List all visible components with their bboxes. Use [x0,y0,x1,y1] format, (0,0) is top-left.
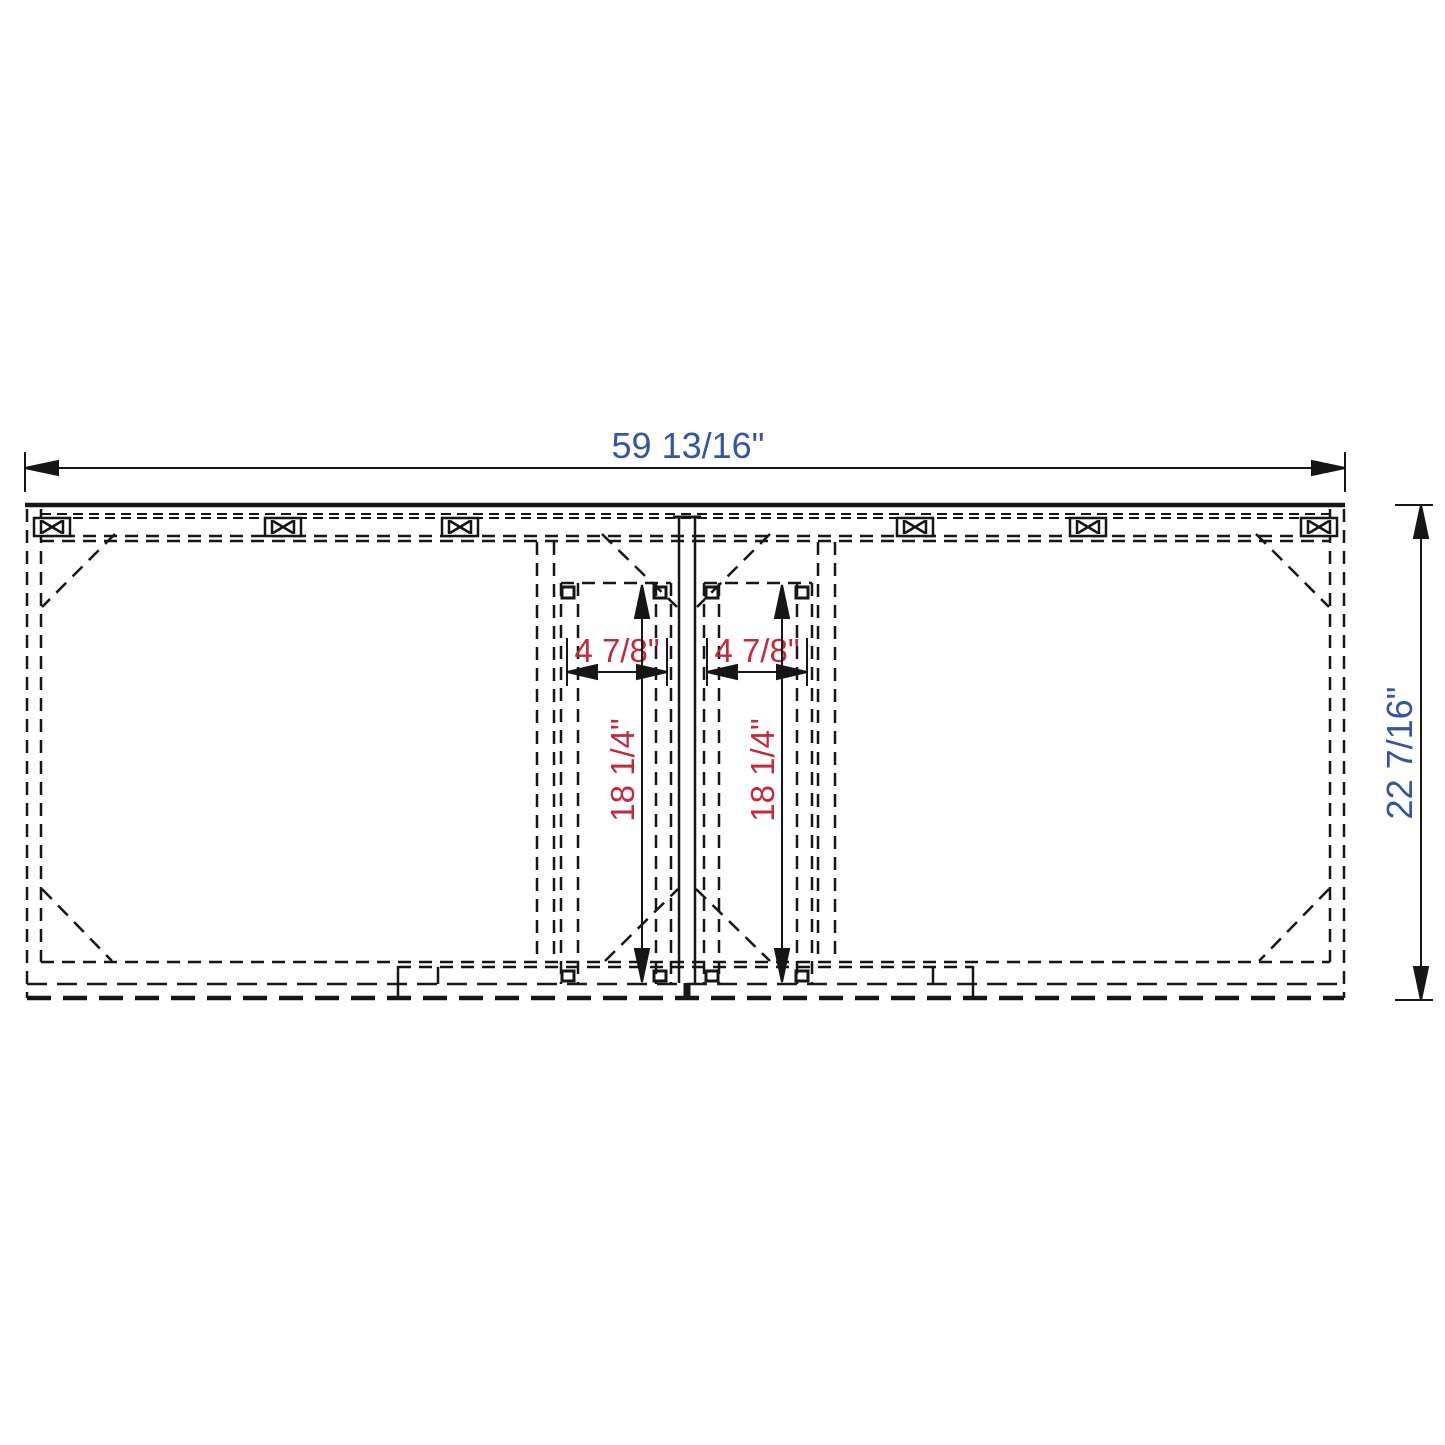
rail-bracket-icons [34,518,1337,536]
central-divider-post [673,517,701,999]
arrowhead-left-icon [25,461,58,475]
corner-braces [42,534,1329,961]
arrowhead-down-icon [775,949,789,982]
cabinet-side-walls [27,509,1344,998]
bracket-icon [897,518,933,536]
bracket-icon [265,518,301,536]
left-opening-height-label: 18 1/4" [604,718,641,821]
arrowhead-down-icon [1414,967,1428,1000]
bracket-icon [34,518,70,536]
bracket-icon [442,518,478,536]
arrowhead-up-icon [775,585,789,618]
interior-partitions [537,542,835,961]
bracket-icon [1301,518,1337,536]
technical-drawing-page: 59 13/16" 22 7/16" [0,0,1445,1445]
arrowhead-up-icon [635,585,649,618]
overall-width-label: 59 13/16" [612,425,765,466]
left-opening-width-label: 4 7/8" [574,632,659,669]
cabinet-drawing-svg: 59 13/16" 22 7/16" [0,0,1445,1445]
arrowhead-right-icon [1312,461,1345,475]
arrowhead-down-icon [635,949,649,982]
right-opening-width-label: 4 7/8" [714,632,799,669]
right-opening-height-label: 18 1/4" [744,718,781,821]
bracket-icon [1070,518,1106,536]
arrowhead-up-icon [1414,505,1428,538]
overall-depth-label: 22 7/16" [1379,687,1420,820]
